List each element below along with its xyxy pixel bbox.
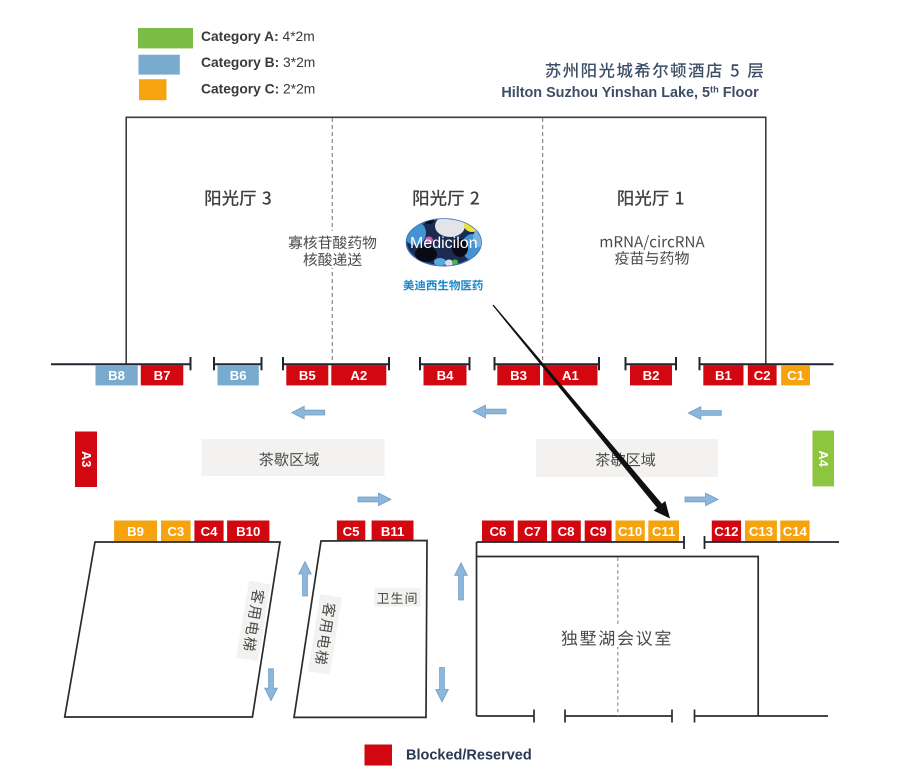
svg-text:C10: C10 (618, 524, 642, 539)
svg-text:Hilton Suzhou Yinshan Lake, 5t: Hilton Suzhou Yinshan Lake, 5th Floor (501, 84, 759, 101)
svg-text:Blocked/Reserved: Blocked/Reserved (406, 748, 532, 764)
svg-text:B4: B4 (437, 368, 455, 383)
svg-text:B1: B1 (715, 368, 732, 383)
svg-text:B6: B6 (230, 368, 247, 383)
svg-text:C5: C5 (343, 524, 360, 539)
svg-text:B2: B2 (643, 368, 660, 383)
svg-text:A3: A3 (79, 451, 94, 467)
svg-text:C12: C12 (714, 524, 738, 539)
svg-text:Category A: 4*2m: Category A: 4*2m (201, 29, 315, 44)
svg-text:B9: B9 (127, 524, 144, 539)
svg-text:B8: B8 (108, 368, 125, 383)
svg-text:Category B: 3*2m: Category B: 3*2m (201, 55, 315, 70)
svg-text:C9: C9 (590, 524, 607, 539)
svg-text:B3: B3 (510, 368, 527, 383)
svg-text:C3: C3 (167, 524, 184, 539)
svg-text:A1: A1 (562, 368, 579, 383)
svg-text:A2: A2 (350, 368, 367, 383)
svg-text:C2: C2 (754, 368, 771, 383)
svg-text:A4: A4 (816, 450, 831, 467)
svg-text:Category C: 2*2m: Category C: 2*2m (201, 81, 315, 96)
svg-text:C8: C8 (558, 524, 575, 539)
svg-text:Medicilon: Medicilon (410, 235, 478, 252)
svg-text:B10: B10 (236, 524, 260, 539)
svg-text:B7: B7 (154, 368, 171, 383)
svg-text:C11: C11 (652, 524, 675, 539)
svg-text:B11: B11 (381, 524, 404, 539)
svg-text:C6: C6 (489, 524, 506, 539)
svg-text:C7: C7 (524, 524, 541, 539)
svg-text:C14: C14 (783, 524, 808, 539)
svg-text:B5: B5 (299, 368, 316, 383)
svg-text:C13: C13 (749, 524, 773, 539)
svg-text:C4: C4 (201, 524, 219, 539)
svg-text:C1: C1 (787, 368, 804, 383)
